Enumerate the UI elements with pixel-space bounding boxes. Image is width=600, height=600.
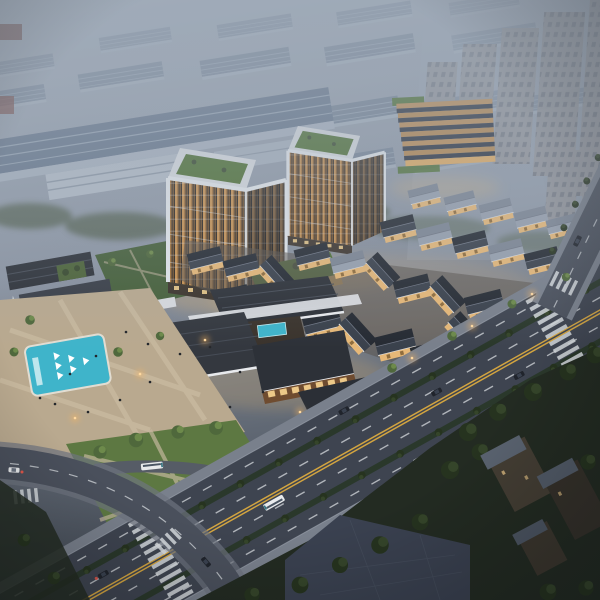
vignette — [0, 0, 600, 600]
aerial-rendering — [0, 0, 600, 600]
scene-canvas — [0, 0, 600, 600]
